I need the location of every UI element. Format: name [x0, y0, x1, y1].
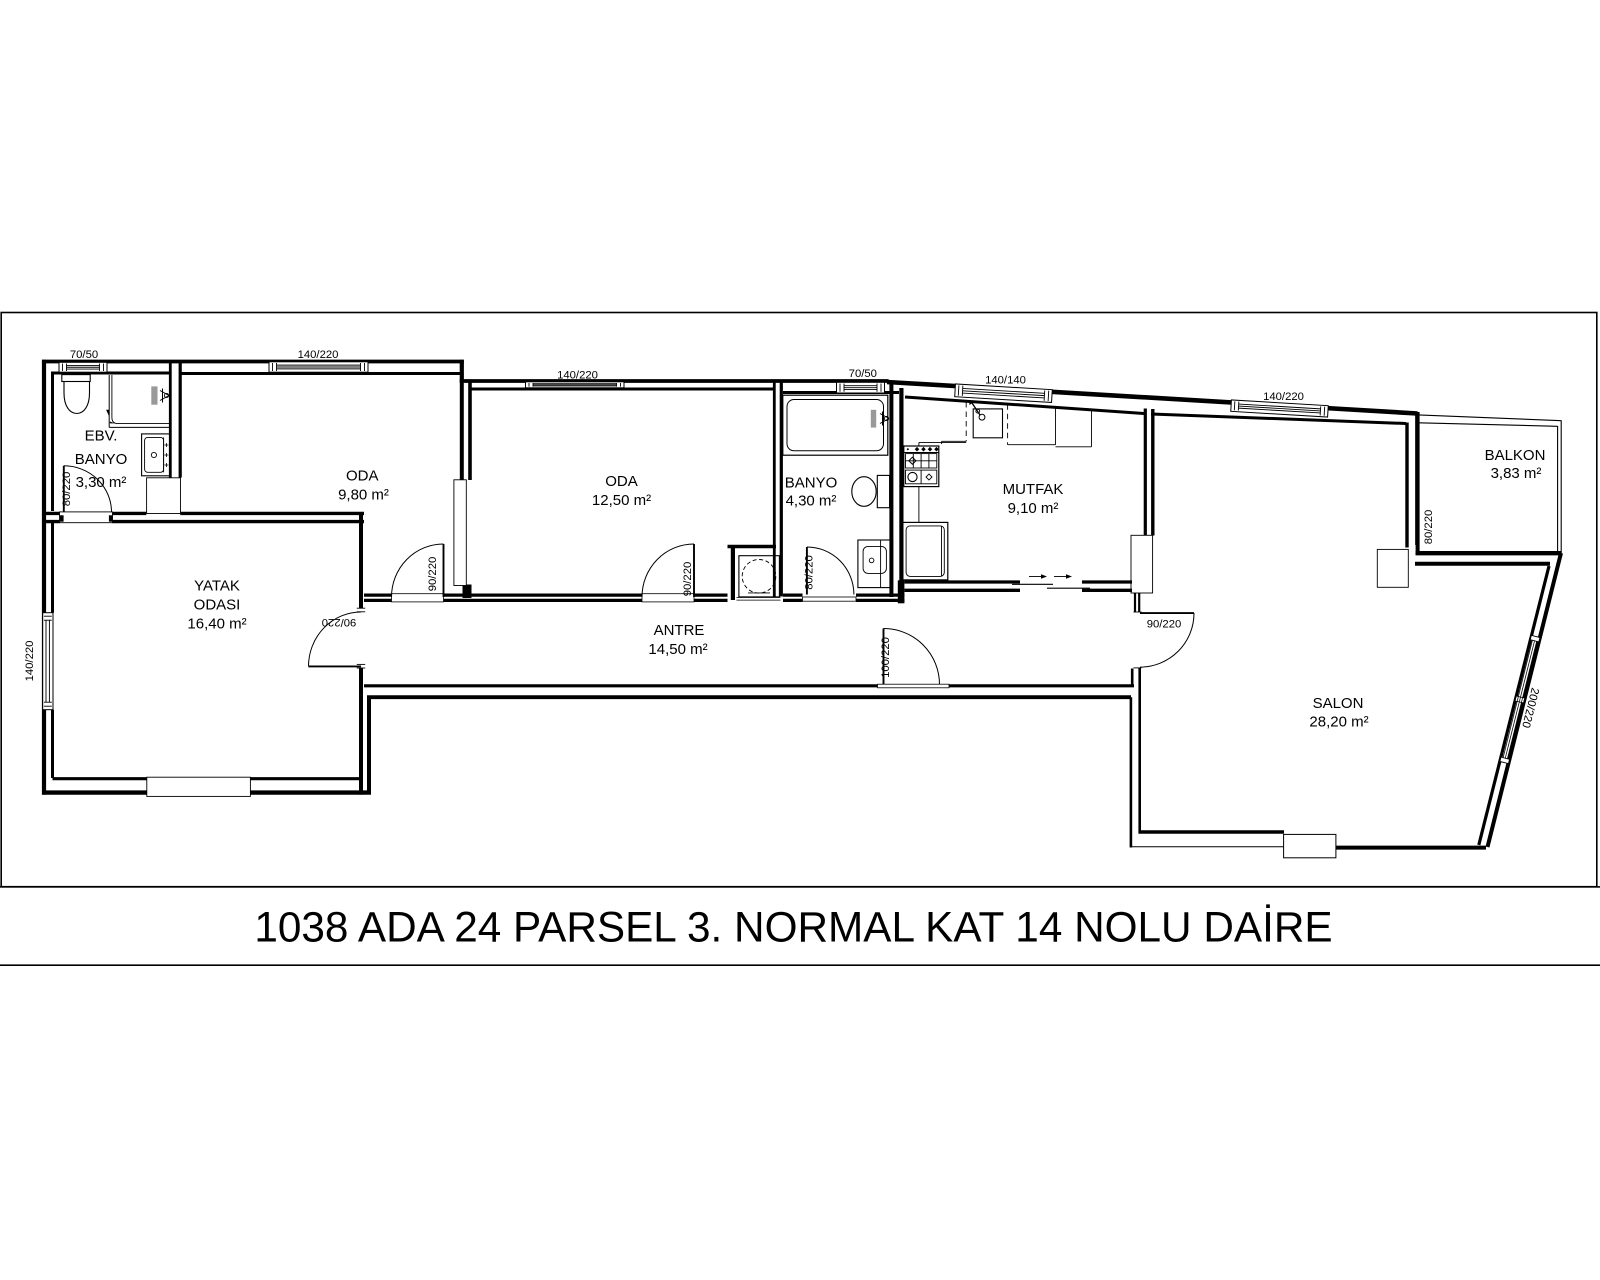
svg-text:ODA: ODA [346, 468, 379, 485]
svg-text:100/220: 100/220 [880, 637, 892, 678]
svg-text:28,20 m²: 28,20 m² [1309, 714, 1368, 731]
svg-text:90/220: 90/220 [682, 562, 694, 597]
svg-text:140/220: 140/220 [557, 370, 598, 382]
svg-text:70/50: 70/50 [849, 368, 877, 380]
svg-text:3,83 m²: 3,83 m² [1491, 465, 1542, 482]
svg-text:ANTRE: ANTRE [654, 622, 705, 639]
svg-text:MUTFAK: MUTFAK [1003, 481, 1064, 498]
svg-text:140/220: 140/220 [24, 641, 36, 682]
svg-text:70/50: 70/50 [70, 349, 98, 361]
svg-text:BALKON: BALKON [1485, 447, 1546, 464]
svg-text:16,40 m²: 16,40 m² [187, 616, 246, 633]
svg-text:80/220: 80/220 [1423, 510, 1435, 545]
svg-text:80/220: 80/220 [804, 555, 816, 590]
svg-text:80/220: 80/220 [61, 472, 73, 507]
svg-text:140/140: 140/140 [985, 375, 1026, 387]
svg-text:EBV.: EBV. [85, 428, 118, 445]
svg-text:12,50 m²: 12,50 m² [592, 492, 651, 509]
svg-text:140/220: 140/220 [298, 349, 339, 361]
svg-text:SALON: SALON [1313, 695, 1364, 712]
svg-text:90/220: 90/220 [1147, 619, 1182, 631]
svg-text:ODASI: ODASI [194, 597, 241, 614]
svg-text:9,10 m²: 9,10 m² [1008, 500, 1059, 517]
svg-text:YATAK: YATAK [194, 578, 240, 595]
svg-text:BANYO: BANYO [785, 475, 838, 492]
svg-text:4,30 m²: 4,30 m² [786, 493, 837, 510]
svg-text:14,50 m²: 14,50 m² [648, 641, 707, 658]
svg-text:90/220: 90/220 [427, 557, 439, 592]
svg-text:9,80 m²: 9,80 m² [338, 487, 389, 504]
svg-text:ODA: ODA [605, 473, 638, 490]
svg-text:140/220: 140/220 [1263, 391, 1304, 403]
svg-text:90/220: 90/220 [322, 616, 357, 628]
svg-text:BANYO: BANYO [75, 451, 128, 468]
svg-text:1038 ADA 24 PARSEL 3. NORMAL K: 1038 ADA 24 PARSEL 3. NORMAL KAT 14 NOLU… [254, 904, 1332, 951]
svg-text:3,30 m²: 3,30 m² [76, 474, 127, 491]
